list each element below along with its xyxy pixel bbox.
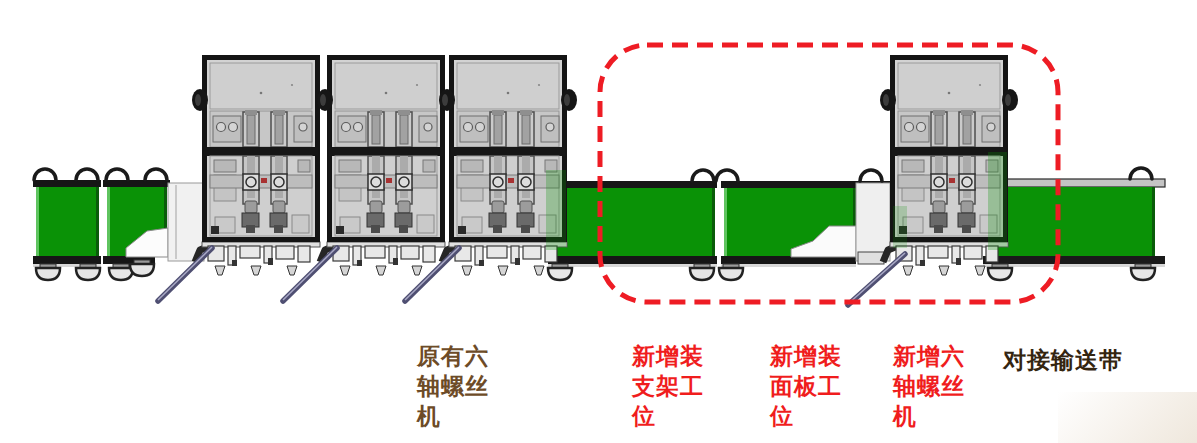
label-original-six-axis-screw-machine: 原有六 轴螺丝 机 [417,341,489,431]
assembly-line-diagram: 原有六 轴螺丝 机 新增装 支架工 位 新增装 面板工 位 新增六 轴螺丝 机 … [0,0,1197,443]
label-new-bracket-assembly-station: 新增装 支架工 位 [632,341,704,431]
label-new-panel-assembly-station: 新增装 面板工 位 [770,341,842,431]
diagram-canvas [0,0,1197,443]
original-screw-machine-2 [329,58,443,240]
page-shadow [1058,392,1197,443]
label-new-six-axis-screw-machine: 新增六 轴螺丝 机 [893,341,965,431]
glass-green-tint [988,152,1007,250]
docking-conveyor [983,168,1165,280]
bracket-station-conveyor [548,170,717,280]
glass-green-tint [893,206,907,248]
original-screw-machine-1 [204,58,318,240]
infeed-conveyor [33,169,204,280]
label-docking-conveyor-belt: 对接输送带 [1003,345,1123,375]
panel-station-conveyor [716,170,890,280]
glass-green-tint [546,170,566,250]
